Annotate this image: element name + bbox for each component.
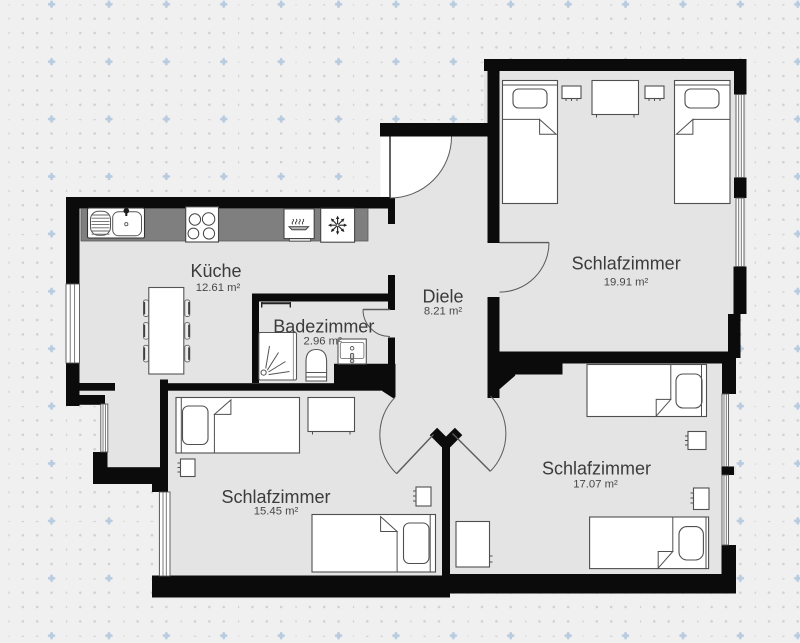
svg-text:Schlafzimmer: Schlafzimmer bbox=[542, 459, 651, 479]
svg-text:12.61 m²: 12.61 m² bbox=[196, 282, 241, 294]
svg-text:Diele: Diele bbox=[422, 287, 463, 307]
svg-text:15.45 m²: 15.45 m² bbox=[254, 506, 299, 518]
svg-text:Badezimmer: Badezimmer bbox=[273, 317, 374, 337]
svg-text:Schlafzimmer: Schlafzimmer bbox=[221, 487, 330, 507]
svg-text:17.07 m²: 17.07 m² bbox=[573, 479, 618, 491]
svg-text:Küche: Küche bbox=[190, 261, 241, 281]
svg-text:2.96 m²: 2.96 m² bbox=[304, 336, 343, 348]
svg-text:Schlafzimmer: Schlafzimmer bbox=[572, 254, 681, 274]
svg-text:8.21 m²: 8.21 m² bbox=[424, 306, 463, 318]
svg-text:19.91 m²: 19.91 m² bbox=[604, 277, 649, 289]
